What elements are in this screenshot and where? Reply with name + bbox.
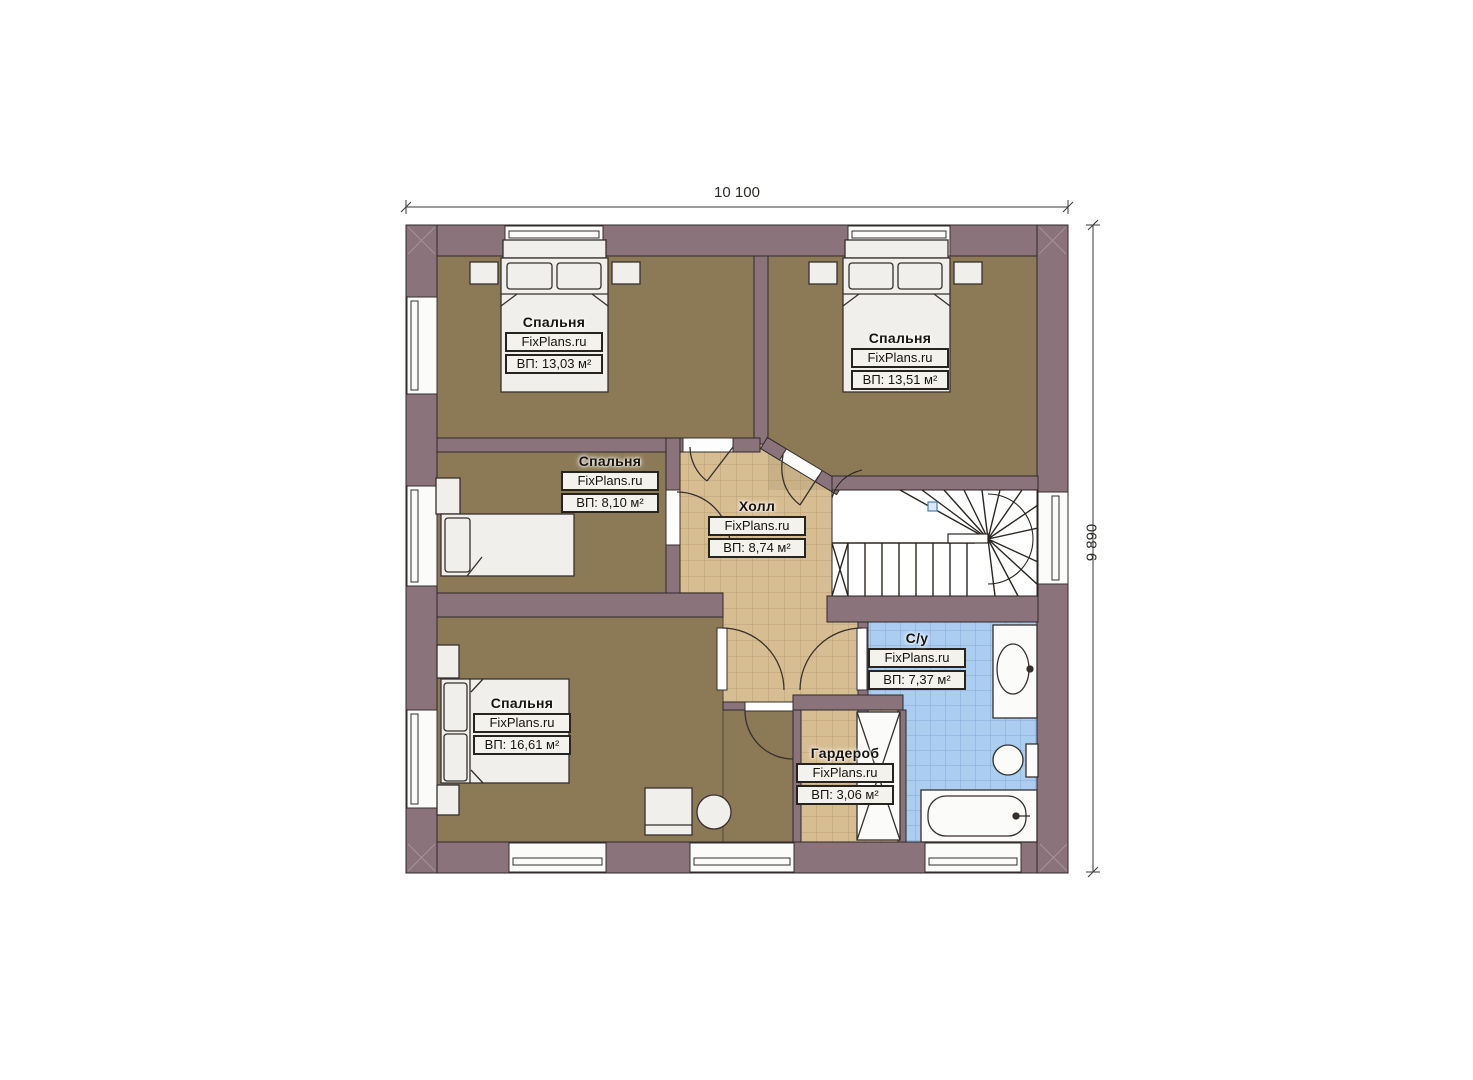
room-label-bathroom: С/у FixPlans.ru ВП: 7,37 м² <box>868 630 966 690</box>
nightstand <box>436 478 460 514</box>
pillow <box>445 518 470 572</box>
window-bottom-2 <box>690 843 794 872</box>
wall-bed1-bed2 <box>754 256 768 444</box>
nightstand <box>954 262 982 284</box>
pillow <box>444 683 467 731</box>
brand-box: FixPlans.ru <box>708 516 806 536</box>
room-name: Спальня <box>561 453 659 469</box>
room-label-bedroom-mid-left: Спальня FixPlans.ru ВП: 8,10 м² <box>561 453 659 513</box>
window-bottom-3 <box>925 843 1021 872</box>
wall-bed1-south-a <box>437 438 688 452</box>
wall-bed3-south <box>437 593 723 617</box>
area-box: ВП: 8,10 м² <box>561 493 659 513</box>
nightstand <box>437 785 459 815</box>
dimension-height-label: 9 890 <box>1084 493 1101 593</box>
wall-corridor-south-stub <box>723 702 745 710</box>
area-box: ВП: 3,06 м² <box>796 785 894 805</box>
room-label-bedroom-top-left: Спальня FixPlans.ru ВП: 13,03 м² <box>505 314 603 374</box>
wall-bed2-south <box>832 476 1038 490</box>
area-box: ВП: 16,61 м² <box>473 735 571 755</box>
sink-counter <box>993 625 1037 718</box>
room-name: Холл <box>708 498 806 514</box>
area-box: ВП: 8,74 м² <box>708 538 806 558</box>
wall-hall-west-b <box>666 545 680 593</box>
pillow <box>444 734 467 781</box>
window-left-3 <box>407 710 437 808</box>
room-name: Спальня <box>473 695 571 711</box>
pillow <box>898 263 942 289</box>
nightstand <box>809 262 837 284</box>
floor-plan-canvas: Спальня FixPlans.ru ВП: 13,03 м² Спальня… <box>0 0 1473 1080</box>
nightstand <box>437 645 459 678</box>
nightstand <box>470 262 498 284</box>
brand-box: FixPlans.ru <box>868 648 966 668</box>
stair-direction-marker <box>928 502 937 511</box>
wall-bath-west-a <box>858 622 868 628</box>
window-right-1 <box>1038 492 1068 584</box>
brand-box: FixPlans.ru <box>851 348 949 368</box>
room-name: Спальня <box>851 330 949 346</box>
window-bottom-1 <box>509 843 606 872</box>
toilet <box>993 744 1038 777</box>
wall-bed1-south-b <box>733 438 760 452</box>
brand-box: FixPlans.ru <box>505 332 603 352</box>
faucet <box>1027 666 1033 672</box>
brand-box: FixPlans.ru <box>561 471 659 491</box>
brand-box: FixPlans.ru <box>796 763 894 783</box>
pillow <box>849 263 893 289</box>
table <box>645 788 692 835</box>
nightstand <box>612 262 640 284</box>
room-name: Гардероб <box>796 745 894 761</box>
area-box: ВП: 7,37 м² <box>868 670 966 690</box>
room-label-bedroom-bottom-left: Спальня FixPlans.ru ВП: 16,61 м² <box>473 695 571 755</box>
room-label-bedroom-top-right: Спальня FixPlans.ru ВП: 13,51 м² <box>851 330 949 390</box>
wall-stairs-south <box>827 596 1038 622</box>
area-box: ВП: 13,51 м² <box>851 370 949 390</box>
bathtub <box>921 790 1037 842</box>
room-label-wardrobe: Гардероб FixPlans.ru ВП: 3,06 м² <box>796 745 894 805</box>
pillow <box>507 263 552 289</box>
dimension-width-label: 10 100 <box>406 184 1068 201</box>
room-label-hall: Холл FixPlans.ru ВП: 8,74 м² <box>708 498 806 558</box>
wall-wardrobe-north <box>793 695 903 710</box>
window-left-2 <box>407 486 437 586</box>
room-name: С/у <box>868 630 966 646</box>
window-left-1 <box>407 297 437 394</box>
brand-box: FixPlans.ru <box>473 713 571 733</box>
pillow <box>557 263 601 289</box>
area-box: ВП: 13,03 м² <box>505 354 603 374</box>
room-name: Спальня <box>505 314 603 330</box>
stool <box>697 795 731 829</box>
